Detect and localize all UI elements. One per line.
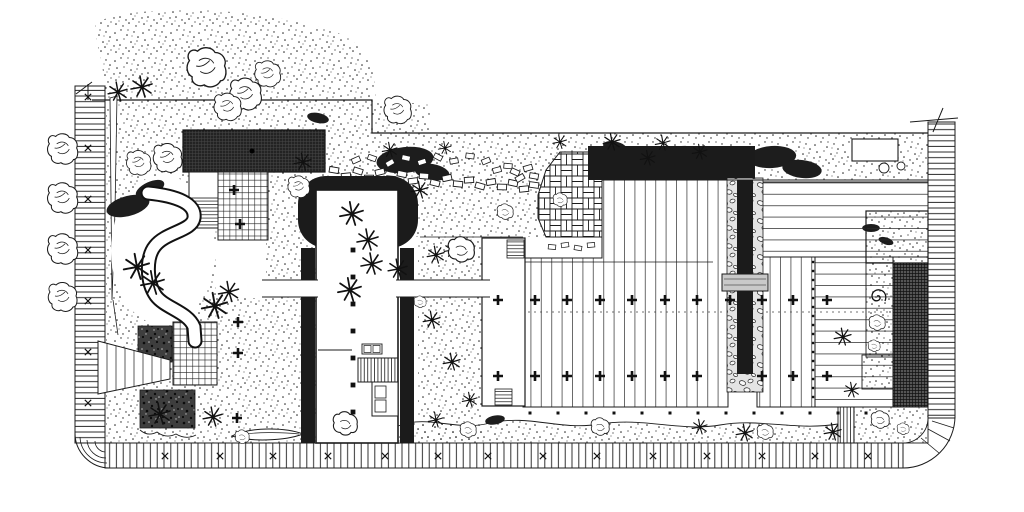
- dot-symbol: [812, 378, 814, 380]
- roof-vent-dot: [250, 149, 255, 154]
- dot-symbol: [725, 412, 728, 415]
- tree-symbol: [384, 96, 411, 124]
- bush-symbol: [460, 422, 476, 438]
- interior-room: [372, 382, 398, 416]
- dot-symbol: [557, 412, 560, 415]
- building-shadow-band-left: [301, 248, 315, 443]
- stone-symbol: [574, 245, 582, 251]
- tree-symbol: [187, 48, 226, 87]
- dot-symbol: [812, 342, 814, 344]
- plant-pot-b: [897, 162, 905, 170]
- tree-symbol: [255, 61, 281, 87]
- dot-symbol: [812, 360, 814, 362]
- dark-grid-block: [893, 263, 928, 407]
- dot-symbol: [865, 412, 868, 415]
- bush-symbol: [235, 430, 249, 444]
- pergola-bar: [588, 146, 755, 180]
- dot-symbol: [351, 248, 356, 253]
- stone-symbol: [329, 166, 339, 173]
- dot-symbol: [351, 302, 356, 307]
- dot-symbol: [812, 387, 814, 389]
- building-shadow-band-right: [400, 248, 414, 443]
- tree-symbol: [153, 143, 182, 172]
- dot-symbol: [781, 412, 784, 415]
- stone-symbol: [497, 184, 506, 190]
- dot-symbol: [753, 412, 756, 415]
- wing-floor: [482, 238, 525, 406]
- stone-symbol: [504, 163, 513, 169]
- dot-symbol: [613, 412, 616, 415]
- dot-symbol: [351, 275, 356, 280]
- grid-plaza-upper-grid: [218, 172, 268, 240]
- tree-symbol: [288, 176, 310, 198]
- garden-table: [852, 139, 898, 161]
- interior-stair-room: [358, 358, 398, 382]
- right-boardwalk: [928, 122, 955, 418]
- dot-symbol: [351, 410, 356, 415]
- bush-symbol: [869, 315, 885, 331]
- stone-symbol: [408, 178, 418, 185]
- dot-symbol: [812, 333, 814, 335]
- dot-symbol: [697, 412, 700, 415]
- stone-symbol: [466, 153, 475, 159]
- dot-symbol: [351, 356, 356, 361]
- stone-symbol: [464, 177, 474, 183]
- veranda-wing: [482, 238, 525, 406]
- plant-pot-a: [879, 163, 889, 173]
- stone-symbol: [453, 181, 463, 188]
- bush-symbol: [553, 193, 567, 207]
- right-steps: [838, 407, 854, 443]
- dot-symbol: [812, 351, 814, 353]
- bridge-west: [262, 280, 318, 297]
- bush-symbol: [414, 296, 426, 308]
- site-plan-svg: [0, 0, 1024, 512]
- bottom-sidewalk: [105, 443, 903, 468]
- dot-symbol: [812, 306, 814, 308]
- tree-symbol: [48, 183, 78, 213]
- tree-symbol: [48, 282, 77, 311]
- wing-top-stair: [507, 240, 524, 258]
- bush-symbol: [333, 412, 357, 435]
- stone-symbol: [587, 242, 595, 247]
- stone-symbol: [449, 158, 458, 164]
- mid-strip-planting: [418, 237, 482, 443]
- dot-symbol: [812, 315, 814, 317]
- bush-symbol: [757, 424, 773, 440]
- rill-bridge: [722, 274, 768, 291]
- dot-symbol: [812, 288, 814, 290]
- tree-symbol: [48, 234, 78, 264]
- dot-symbol: [641, 412, 644, 415]
- dot-symbol: [812, 261, 814, 263]
- dot-symbol: [812, 396, 814, 398]
- dot-symbol: [529, 412, 532, 415]
- stone-symbol: [529, 182, 539, 189]
- dot-symbol: [351, 329, 356, 334]
- planting-patch-small: [862, 355, 893, 389]
- dot-symbol: [809, 412, 812, 415]
- stone-symbol: [561, 242, 569, 247]
- dot-symbol: [669, 412, 672, 415]
- stone-symbol: [519, 186, 529, 193]
- bush-symbol: [871, 411, 889, 429]
- bridge-east: [396, 280, 490, 297]
- dot-symbol: [812, 297, 814, 299]
- stone-symbol: [486, 178, 496, 185]
- dot-symbol: [812, 270, 814, 272]
- dot-symbol: [351, 383, 356, 388]
- dot-symbol: [812, 369, 814, 371]
- stone-symbol: [529, 173, 539, 180]
- dot-symbol: [837, 412, 840, 415]
- tree-symbol: [126, 150, 150, 175]
- dot-symbol: [585, 412, 588, 415]
- tree-symbol: [48, 134, 78, 164]
- wing-bottom-steps: [495, 389, 512, 405]
- bush-symbol: [868, 340, 880, 352]
- dot-symbol: [812, 324, 814, 326]
- planting-square-upper: [866, 211, 928, 263]
- bush-symbol: [897, 423, 909, 435]
- bush-symbol: [591, 418, 609, 436]
- stone-symbol: [548, 244, 556, 249]
- stone-symbol: [419, 173, 429, 179]
- dot-symbol: [812, 279, 814, 281]
- bush-symbol: [497, 204, 513, 220]
- site-plan-frame: [0, 0, 1024, 512]
- tree-symbol: [214, 93, 241, 121]
- bush-symbol: [448, 237, 474, 262]
- dark-bed-lower: [140, 390, 195, 428]
